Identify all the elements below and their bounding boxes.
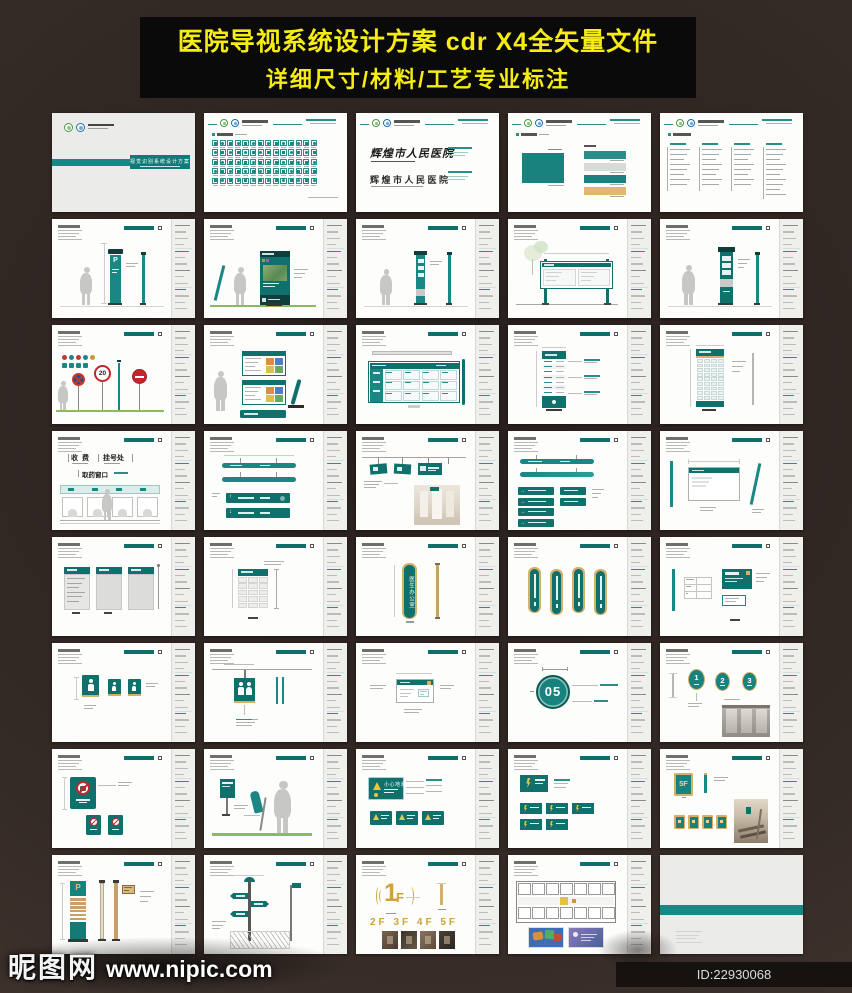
decor-shape bbox=[723, 291, 730, 292]
arrow-down-icon: ↓ bbox=[229, 509, 232, 515]
spec-text-line bbox=[783, 575, 793, 576]
pictogram-caption bbox=[220, 185, 225, 186]
hospital-name-line bbox=[394, 125, 414, 126]
hospital-logo-icon bbox=[223, 122, 227, 126]
floor-line bbox=[60, 520, 160, 521]
directory-cell bbox=[704, 387, 710, 391]
spec-text-line bbox=[327, 899, 339, 900]
text-line bbox=[692, 477, 712, 479]
spec-text-line bbox=[327, 263, 339, 264]
pictogram-caption bbox=[304, 157, 309, 158]
text-line bbox=[666, 442, 690, 443]
text-line bbox=[364, 481, 382, 482]
section-bullet bbox=[212, 133, 215, 136]
person-silhouette bbox=[382, 293, 385, 305]
spec-text-line bbox=[327, 276, 336, 277]
spec-text-line bbox=[479, 620, 489, 621]
sign-base bbox=[718, 303, 733, 305]
side-blade bbox=[282, 677, 284, 704]
spec-text-line bbox=[327, 687, 339, 688]
page-corner-label bbox=[732, 650, 762, 654]
spec-text-line bbox=[175, 925, 186, 926]
traffic-badge-icon bbox=[69, 355, 74, 360]
dimension-line bbox=[232, 569, 233, 608]
decor-shape bbox=[696, 356, 724, 358]
pictogram-icon bbox=[297, 170, 300, 173]
spec-text-line bbox=[327, 575, 337, 576]
text-line bbox=[514, 339, 535, 340]
list-item-line bbox=[766, 149, 786, 150]
page-number-box bbox=[462, 650, 466, 654]
decor-shape bbox=[556, 392, 564, 393]
spec-text-line bbox=[175, 344, 188, 345]
dimension-line bbox=[224, 664, 254, 665]
spec-text-line bbox=[631, 755, 646, 756]
decor-shape bbox=[568, 361, 582, 362]
hospital-logo-icon bbox=[234, 122, 238, 126]
decor-shape bbox=[722, 705, 770, 708]
page-corner-label bbox=[732, 438, 762, 442]
spec-text-line bbox=[327, 806, 336, 807]
spec-text-line bbox=[631, 283, 644, 284]
page-title-line bbox=[514, 543, 536, 546]
spec-text-line bbox=[631, 543, 646, 544]
wood-slat bbox=[70, 914, 86, 917]
sign-base bbox=[108, 303, 122, 305]
pictogram-caption bbox=[213, 185, 218, 186]
spec-text-line bbox=[631, 469, 641, 470]
spec-text-line bbox=[479, 437, 494, 438]
decor-shape bbox=[426, 791, 442, 792]
spec-text-line bbox=[479, 938, 489, 939]
text-line bbox=[58, 336, 82, 337]
spec-text-line bbox=[631, 376, 646, 377]
spec-text-line bbox=[783, 781, 797, 782]
list-item-line bbox=[766, 184, 783, 185]
decor-shape bbox=[260, 497, 270, 499]
spec-text-line bbox=[783, 806, 792, 807]
spec-text-line bbox=[479, 389, 492, 390]
spec-text-line bbox=[175, 626, 187, 627]
text-line bbox=[592, 493, 601, 494]
page-thumbnail-21-posterFrames bbox=[52, 537, 195, 636]
dimension-line bbox=[224, 455, 294, 456]
pictogram-icon bbox=[237, 151, 240, 154]
directory-cell bbox=[697, 396, 703, 400]
floor-map bbox=[275, 387, 283, 394]
pictogram-icon bbox=[252, 161, 255, 164]
warning-label: 小心地滑 bbox=[384, 781, 406, 788]
pictogram-icon bbox=[305, 179, 308, 182]
spec-text-line bbox=[783, 620, 793, 621]
text-line bbox=[514, 654, 538, 655]
spec-text-line bbox=[327, 675, 341, 676]
spec-text-line bbox=[631, 687, 643, 688]
panel-base bbox=[248, 617, 258, 619]
arrow-icon: → bbox=[520, 488, 525, 494]
text-line bbox=[420, 694, 424, 695]
decor-shape bbox=[694, 684, 699, 685]
spec-text-line bbox=[327, 919, 340, 920]
spec-text-line bbox=[783, 562, 792, 563]
spec-text-line bbox=[479, 308, 491, 309]
side-blade bbox=[276, 677, 278, 704]
page-title-line bbox=[362, 437, 384, 440]
spec-text-line bbox=[783, 694, 798, 695]
spec-text-line bbox=[327, 774, 336, 775]
pictogram-caption bbox=[311, 147, 316, 148]
list-item-line bbox=[734, 169, 751, 170]
text-line bbox=[514, 236, 532, 237]
pictogram-caption bbox=[243, 157, 248, 158]
pictogram-icon bbox=[244, 161, 247, 164]
page-thumbnail-17-hangBars: ↑↓ bbox=[204, 431, 347, 530]
spec-text-line bbox=[479, 225, 494, 226]
spec-text-line bbox=[175, 308, 187, 309]
pictogram-icon bbox=[229, 142, 232, 145]
text-line bbox=[592, 497, 598, 498]
spec-text-line bbox=[327, 562, 336, 563]
text-line bbox=[362, 872, 380, 873]
spec-sidebar bbox=[779, 749, 803, 848]
text-line bbox=[210, 869, 231, 870]
spec-text-line bbox=[479, 887, 493, 888]
spec-text-line bbox=[783, 838, 795, 839]
header-patch bbox=[606, 116, 648, 127]
spec-text-line bbox=[175, 594, 184, 595]
pictogram-icon bbox=[290, 170, 293, 173]
directory-cell bbox=[704, 368, 710, 372]
page-corner-label bbox=[124, 862, 154, 866]
sign-pole bbox=[142, 255, 145, 303]
floor-number: 05 bbox=[536, 684, 570, 699]
spec-text-line bbox=[327, 369, 339, 370]
text-line bbox=[514, 875, 538, 876]
spec-text-line bbox=[631, 331, 646, 332]
spec-text-line bbox=[175, 649, 190, 650]
spec-text-line bbox=[631, 594, 640, 595]
dimension-line bbox=[688, 461, 740, 462]
pictogram-icon bbox=[313, 161, 316, 164]
decor-shape bbox=[437, 883, 446, 884]
text-line bbox=[514, 451, 538, 452]
spec-text-line bbox=[783, 655, 794, 656]
sign-pole bbox=[102, 382, 103, 410]
decor-shape bbox=[534, 602, 536, 606]
decor-shape bbox=[82, 695, 99, 697]
spec-text-line bbox=[479, 549, 490, 550]
spec-text-line bbox=[479, 838, 491, 839]
spec-text-line bbox=[175, 295, 189, 296]
spec-text-line bbox=[783, 395, 794, 396]
spec-text-line bbox=[783, 295, 797, 296]
decor-shape bbox=[381, 818, 387, 819]
page-number-box bbox=[462, 544, 466, 548]
decor-shape bbox=[406, 781, 424, 782]
text-line bbox=[692, 481, 709, 483]
spec-text-line bbox=[783, 495, 796, 496]
decor-shape bbox=[420, 466, 426, 471]
panel-cell bbox=[248, 577, 257, 583]
spec-text-line bbox=[479, 257, 489, 258]
traffic-badge-icon bbox=[76, 363, 81, 368]
spec-sidebar bbox=[323, 219, 347, 318]
text-line bbox=[666, 236, 684, 237]
page-title-line bbox=[666, 755, 688, 758]
spec-text-line bbox=[631, 649, 646, 650]
page-corner-label bbox=[580, 862, 610, 866]
pictogram-caption bbox=[281, 175, 286, 176]
arrow-plate-left bbox=[230, 911, 248, 917]
text-line bbox=[362, 442, 386, 443]
nipic-watermark: 昵图网 www.nipic.com bbox=[8, 946, 273, 986]
counter-label: 挂号处 bbox=[103, 453, 124, 463]
english-name-line bbox=[371, 186, 423, 187]
spec-text-line bbox=[327, 613, 341, 614]
spec-text-line bbox=[479, 832, 489, 833]
decor-shape bbox=[280, 496, 285, 501]
spec-text-line bbox=[327, 549, 338, 550]
text-line bbox=[210, 448, 228, 449]
spec-text-line bbox=[631, 389, 644, 390]
decor-shape bbox=[554, 787, 566, 788]
text-line bbox=[514, 872, 532, 873]
spec-text-line bbox=[479, 357, 493, 358]
hospital-name-line bbox=[242, 125, 262, 126]
post-base bbox=[604, 303, 611, 305]
banner-title: 医院导视系统设计方案 cdr X4全矢量文件 bbox=[178, 22, 658, 58]
text-line bbox=[420, 691, 427, 692]
decor-shape bbox=[76, 799, 90, 801]
text-line bbox=[756, 577, 767, 578]
text-line bbox=[370, 688, 383, 689]
spec-text-line bbox=[479, 912, 488, 913]
pictogram-caption bbox=[266, 157, 271, 158]
sign-pole bbox=[118, 363, 120, 410]
floor-map bbox=[266, 395, 274, 402]
text-line bbox=[210, 557, 234, 558]
text-line bbox=[752, 512, 761, 513]
spec-text-line bbox=[327, 867, 338, 868]
pictogram-icon bbox=[221, 170, 224, 173]
spec-text-line bbox=[175, 257, 185, 258]
spec-text-line bbox=[479, 719, 493, 720]
directory-cell bbox=[697, 377, 703, 381]
promo-image: 医院导视系统设计方案 cdr X4全矢量文件 详细尺寸/材料/工艺专业标注 视觉… bbox=[0, 0, 852, 993]
spec-text-line bbox=[327, 382, 336, 383]
ground-line bbox=[516, 304, 618, 305]
spec-text-line bbox=[479, 331, 494, 332]
spec-text-line bbox=[175, 382, 184, 383]
text-line bbox=[362, 448, 380, 449]
spec-text-line bbox=[327, 501, 338, 502]
back-cover-band bbox=[660, 905, 803, 915]
pictogram-caption bbox=[289, 175, 294, 176]
spec-text-line bbox=[175, 556, 188, 557]
text-line bbox=[210, 769, 234, 770]
spec-text-line bbox=[631, 732, 643, 733]
text-line bbox=[362, 869, 383, 870]
page-title-line bbox=[666, 543, 688, 546]
swatch-label bbox=[610, 160, 624, 161]
decor-shape bbox=[600, 576, 602, 600]
text-line bbox=[448, 176, 468, 177]
spec-text-line bbox=[175, 376, 190, 377]
spec-text-line bbox=[327, 238, 340, 239]
decor-shape bbox=[90, 829, 97, 830]
page-thumbnail-24-curvedPlates bbox=[508, 537, 651, 636]
pictogram-icon bbox=[229, 179, 232, 182]
spec-text-line bbox=[479, 369, 491, 370]
post-base bbox=[542, 303, 549, 305]
floor-line bbox=[668, 306, 772, 307]
spec-sidebar bbox=[779, 431, 803, 530]
list-column-header bbox=[702, 143, 718, 145]
spec-text-line bbox=[479, 755, 494, 756]
decor-shape bbox=[236, 895, 245, 897]
directory-cell bbox=[711, 387, 717, 391]
decor-shape bbox=[406, 787, 424, 788]
spec-text-line bbox=[327, 893, 337, 894]
text-line bbox=[666, 451, 690, 452]
section-title-line bbox=[521, 133, 537, 136]
hospital-name-line bbox=[242, 120, 268, 123]
decor-shape bbox=[67, 601, 79, 602]
swatch-label bbox=[548, 149, 562, 150]
text-line bbox=[362, 342, 380, 343]
pictogram-caption bbox=[296, 147, 301, 148]
spec-text-line bbox=[479, 787, 489, 788]
spec-text-line bbox=[783, 263, 795, 264]
spec-text-line bbox=[175, 331, 190, 332]
spec-text-line bbox=[175, 887, 189, 888]
text-line bbox=[294, 277, 302, 278]
pictogram-caption bbox=[228, 147, 233, 148]
spec-text-line bbox=[479, 819, 490, 820]
text-line bbox=[245, 362, 258, 363]
spec-text-line bbox=[327, 488, 336, 489]
counter-label: 取药窗口 bbox=[82, 469, 108, 479]
page-title-line bbox=[362, 331, 384, 334]
hospital-name-line bbox=[546, 125, 566, 126]
dimension-line bbox=[544, 253, 609, 254]
text-line bbox=[210, 660, 228, 661]
spec-text-line bbox=[783, 626, 795, 627]
page-title-line bbox=[666, 331, 688, 334]
text-line bbox=[58, 660, 76, 661]
page-number-box bbox=[766, 226, 770, 230]
decor-shape bbox=[260, 512, 270, 514]
page-thumbnail-23-curvedPlate: 医生办公室 bbox=[356, 537, 499, 636]
decor-shape bbox=[530, 691, 534, 692]
text-line bbox=[118, 782, 132, 783]
spec-text-line bbox=[631, 575, 641, 576]
spec-text-line bbox=[479, 382, 488, 383]
spec-text-line bbox=[327, 556, 340, 557]
decor-shape bbox=[600, 684, 618, 686]
text-line bbox=[146, 683, 158, 684]
page-number-box bbox=[462, 438, 466, 442]
list-item-line bbox=[734, 154, 751, 155]
counter-seat bbox=[93, 509, 102, 517]
post bbox=[100, 883, 104, 939]
spec-text-line bbox=[175, 813, 188, 814]
pictogram-icon bbox=[290, 161, 293, 164]
page-corner-label bbox=[428, 544, 458, 548]
pictogram-caption bbox=[266, 175, 271, 176]
pictogram-caption bbox=[311, 166, 316, 167]
swatch-label bbox=[610, 196, 624, 197]
text-line bbox=[126, 263, 138, 264]
decor-shape bbox=[564, 490, 578, 491]
spec-text-line bbox=[175, 350, 184, 351]
page-corner-label bbox=[580, 438, 610, 442]
pictogram-caption bbox=[243, 185, 248, 186]
text-line bbox=[362, 875, 386, 876]
list-item-line bbox=[734, 174, 748, 175]
spec-sidebar bbox=[779, 325, 803, 424]
hanger-rod bbox=[244, 670, 246, 678]
spec-sidebar bbox=[627, 431, 651, 530]
spec-text-line bbox=[327, 283, 340, 284]
decor-shape bbox=[584, 362, 597, 363]
decor-shape bbox=[684, 584, 712, 585]
spec-text-line bbox=[631, 781, 645, 782]
spec-text-line bbox=[783, 276, 792, 277]
text-line bbox=[666, 548, 690, 549]
pictogram-caption bbox=[235, 147, 240, 148]
text-line bbox=[212, 925, 223, 926]
spec-text-line bbox=[479, 906, 494, 907]
decor-shape bbox=[669, 697, 677, 698]
directory-cell bbox=[711, 364, 717, 368]
text-line bbox=[245, 387, 261, 388]
text-line bbox=[692, 485, 706, 487]
spec-sidebar bbox=[779, 219, 803, 318]
side-blade bbox=[462, 359, 465, 405]
header-right-label bbox=[306, 119, 336, 121]
text-line bbox=[514, 866, 538, 867]
decor-shape bbox=[544, 366, 552, 367]
page-number-box bbox=[310, 756, 314, 760]
page-thumbnail-2-icons bbox=[204, 113, 347, 212]
spec-text-line bbox=[783, 357, 797, 358]
decor-shape bbox=[528, 501, 546, 502]
hospital-name-standard: 辉煌市人民医院 bbox=[370, 173, 451, 186]
decor-shape bbox=[236, 719, 252, 720]
page-number-box bbox=[766, 544, 770, 548]
pictogram-caption bbox=[296, 185, 301, 186]
arrow-icon: → bbox=[520, 499, 525, 505]
text-line bbox=[362, 866, 386, 867]
text-line bbox=[245, 358, 261, 359]
spec-text-line bbox=[783, 713, 794, 714]
spec-text-line bbox=[175, 668, 184, 669]
plan-room bbox=[532, 883, 545, 895]
text-line bbox=[58, 451, 82, 452]
page-number-box bbox=[158, 226, 162, 230]
decor-shape bbox=[678, 820, 681, 823]
panel-cell bbox=[259, 596, 268, 602]
directory-cell bbox=[718, 364, 724, 368]
directory-cell bbox=[704, 396, 710, 400]
spec-text-line bbox=[783, 225, 798, 226]
spec-sidebar bbox=[323, 749, 347, 848]
traffic-badge-icon bbox=[62, 363, 67, 368]
decor-shape bbox=[564, 501, 578, 502]
person-silhouette bbox=[279, 781, 287, 789]
spec-text-line bbox=[631, 832, 641, 833]
